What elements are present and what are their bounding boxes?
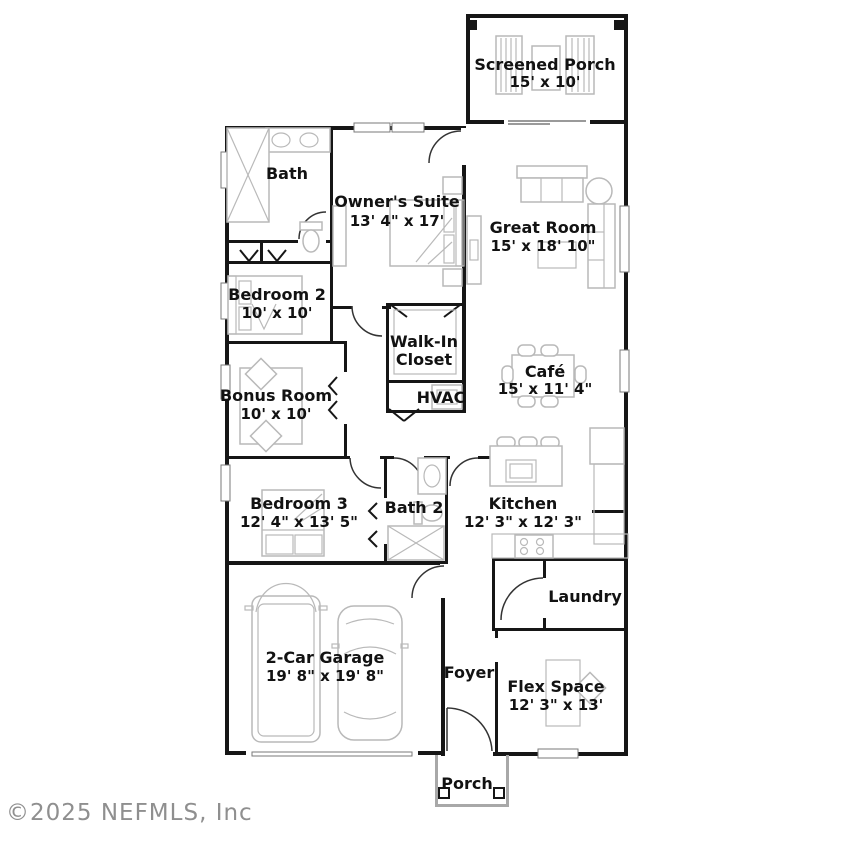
sofa-back <box>517 166 587 178</box>
slider-door-leaf <box>508 123 550 125</box>
wall-garage-top <box>225 561 445 565</box>
toilet-bowl <box>303 230 319 252</box>
window-suite-top-1 <box>354 123 390 132</box>
porch-post <box>614 20 624 30</box>
media-console <box>467 216 481 284</box>
label-bedroom-2: Bedroom 2 <box>228 285 326 304</box>
front-door-arc <box>447 708 492 751</box>
wall-screened-porch-right <box>624 14 628 124</box>
bedroom3-closet-mark <box>369 531 377 547</box>
label-walk-in-closet: Walk-In <box>390 332 458 351</box>
bath2-vanity <box>418 458 446 494</box>
wall-closet-left <box>386 303 389 413</box>
wall-closet-bottom <box>386 380 466 383</box>
side-table <box>586 178 612 204</box>
floor-plan: Screened Porch 15' x 10' Bath Owner's Su… <box>0 0 849 849</box>
label-bonus-room-dims: 10' x 10' <box>240 405 311 423</box>
label-bath: Bath <box>266 164 308 183</box>
front-porch-wall-left <box>435 755 438 807</box>
wall-closet-strip-bottom <box>225 261 333 264</box>
sofa-seat <box>521 178 583 202</box>
slider-door-track <box>508 120 586 122</box>
label-bedroom-3-dims: 12' 4" x 13' 5" <box>240 513 358 531</box>
label-bedroom-3: Bedroom 3 <box>250 494 348 513</box>
window-great-room <box>620 206 629 272</box>
label-garage-dims: 19' 8" x 19' 8" <box>266 667 384 685</box>
label-porch: Porch <box>441 774 492 793</box>
label-great-room: Great Room <box>490 218 597 237</box>
refrigerator <box>590 428 624 464</box>
closet-rod-mark <box>268 250 286 261</box>
garage-overhead-door <box>252 752 412 756</box>
porch-post <box>467 20 477 30</box>
label-hvac: HVAC <box>417 388 466 407</box>
bonus-double-door-opening <box>343 372 348 424</box>
stove <box>515 535 553 558</box>
label-garage: 2-Car Garage <box>266 648 385 667</box>
pantry-counter <box>594 464 624 544</box>
wall-screened-porch-top <box>466 14 628 18</box>
wall-closet-divider <box>260 240 263 264</box>
bedroom3-door-opening <box>350 455 380 460</box>
front-porch-wall-bottom <box>435 804 509 807</box>
label-screened-porch-dims: 15' x 10' <box>509 73 580 91</box>
closet-rod-mark <box>240 250 258 261</box>
label-kitchen: Kitchen <box>489 494 558 513</box>
bedroom3-closet-mark <box>369 503 377 519</box>
laundry-door-opening <box>542 578 547 618</box>
suite-hall-door-opening <box>352 305 382 310</box>
window-suite-top-2 <box>392 123 424 132</box>
label-owners-suite-dims: 13' 4" x 17' <box>350 212 445 230</box>
label-walk-in-closet-2: Closet <box>396 350 453 369</box>
label-cafe-dims: 15' x 11' 4" <box>498 380 593 398</box>
label-bedroom-2-dims: 10' x 10' <box>241 304 312 322</box>
label-flex-space-dims: 12' 3" x 13' <box>509 696 604 714</box>
window-cafe <box>620 350 629 392</box>
wall-pantry-mid <box>592 510 628 513</box>
label-screened-porch: Screened Porch <box>474 55 615 74</box>
suite-hall-door-arc <box>352 306 382 336</box>
wall-flex-left-a <box>495 628 498 638</box>
closet-niche-mark <box>391 305 407 317</box>
window-bedroom3 <box>221 465 230 501</box>
wall-closet-top <box>389 303 466 306</box>
cafe-chair <box>541 345 558 356</box>
copyright-watermark: ©2025 NEFMLS, Inc <box>6 800 253 826</box>
garage-entry-door-arc <box>412 566 444 598</box>
garage-door-opening <box>440 564 446 598</box>
label-cafe: Café <box>525 362 566 381</box>
wall-bedroom2-bonus <box>225 341 347 344</box>
label-laundry: Laundry <box>548 587 622 606</box>
wall-flex-left-b <box>495 662 498 752</box>
wall-foyer-top <box>492 628 510 631</box>
corridor-door-opening <box>450 455 478 460</box>
bath-vanity <box>266 128 330 152</box>
laundry-door-arc <box>501 578 543 620</box>
label-bath-2: Bath 2 <box>385 498 444 517</box>
kitchen-counter <box>492 534 628 558</box>
wall-laundry-bottom <box>510 628 628 631</box>
window-flex <box>538 749 578 758</box>
front-door-opening <box>445 751 493 757</box>
corridor-door-arc <box>450 458 478 486</box>
label-kitchen-dims: 12' 3" x 12' 3" <box>464 513 582 531</box>
kitchen-island <box>490 446 562 486</box>
bedroom3-door-arc <box>350 458 381 488</box>
wall-hvac-bottom <box>386 410 466 413</box>
wall-foyer-right <box>492 558 495 631</box>
label-great-room-dims: 15' x 18' 10" <box>491 237 596 255</box>
closet-niche-mark <box>444 305 460 317</box>
suite-door-opening <box>461 128 467 165</box>
wall-garage-left <box>225 561 229 755</box>
toilet-tank <box>300 222 322 230</box>
front-porch-wall-right <box>506 755 509 807</box>
cafe-chair <box>518 345 535 356</box>
suite-door-arc <box>429 131 461 163</box>
wall-screened-porch-left <box>466 14 470 124</box>
label-foyer: Foyer <box>444 663 495 682</box>
label-flex-space: Flex Space <box>507 677 604 696</box>
dresser <box>333 206 346 266</box>
label-owners-suite: Owner's Suite <box>334 192 460 211</box>
front-porch-post <box>494 788 504 798</box>
label-bonus-room: Bonus Room <box>220 386 332 405</box>
floor-plan-canvas: Screened Porch 15' x 10' Bath Owner's Su… <box>0 0 849 849</box>
nightstand <box>443 269 462 286</box>
